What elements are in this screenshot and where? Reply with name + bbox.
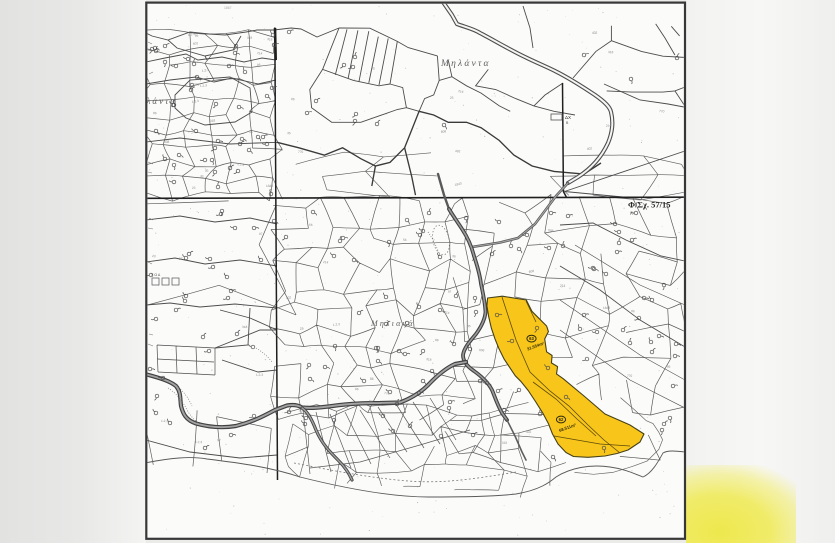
svg-text:318: 318: [267, 37, 273, 42]
svg-text:86: 86: [291, 97, 295, 101]
svg-text:35: 35: [287, 131, 291, 135]
svg-text:23: 23: [152, 254, 156, 258]
svg-text:318: 318: [247, 36, 253, 40]
svg-text:214: 214: [560, 284, 566, 288]
svg-text:1.2.3: 1.2.3: [200, 83, 208, 88]
svg-text:770: 770: [659, 109, 665, 114]
svg-text:23: 23: [192, 186, 196, 190]
svg-text:402: 402: [286, 295, 292, 300]
svg-text:608: 608: [441, 129, 447, 134]
svg-text:86: 86: [370, 377, 374, 381]
svg-text:1.2.3: 1.2.3: [161, 419, 168, 423]
svg-text:608: 608: [479, 348, 485, 352]
svg-text:86: 86: [435, 338, 439, 342]
svg-text:Φ/Σχ. 57/15: Φ/Σχ. 57/15: [628, 200, 671, 210]
svg-text:97: 97: [259, 232, 263, 236]
svg-text:402: 402: [455, 149, 461, 153]
svg-text:23: 23: [450, 96, 454, 100]
svg-text:608: 608: [164, 140, 170, 144]
svg-text:86: 86: [355, 387, 359, 391]
svg-text:770: 770: [194, 82, 200, 87]
svg-text:35: 35: [249, 130, 253, 134]
svg-text:402: 402: [526, 430, 532, 434]
svg-text:770: 770: [298, 150, 304, 154]
svg-text:Μηλιανά: Μηλιανά: [370, 319, 415, 328]
svg-text:318: 318: [608, 50, 614, 54]
svg-text:86: 86: [153, 111, 157, 115]
svg-text:402: 402: [592, 31, 598, 35]
svg-text:770: 770: [384, 391, 390, 396]
svg-text:318: 318: [242, 325, 248, 329]
svg-text:214: 214: [606, 123, 612, 128]
svg-text:318: 318: [502, 441, 508, 445]
svg-text:402: 402: [587, 146, 593, 151]
svg-text:ΔΧ: ΔΧ: [565, 115, 571, 120]
svg-text:770: 770: [627, 374, 633, 378]
svg-text:63: 63: [529, 336, 534, 341]
svg-text:56: 56: [403, 238, 407, 242]
svg-text:318: 318: [210, 118, 216, 123]
svg-text:Χ Ω Δ: Χ Ω Δ: [151, 273, 161, 277]
svg-text:214: 214: [257, 51, 263, 56]
svg-text:35: 35: [467, 324, 471, 328]
svg-text:1843: 1843: [266, 184, 273, 188]
svg-text:62: 62: [559, 417, 564, 422]
svg-text:56: 56: [309, 223, 313, 227]
svg-text:1867: 1867: [224, 6, 232, 10]
svg-text:214: 214: [323, 260, 329, 265]
svg-text:97: 97: [179, 257, 183, 261]
svg-text:Μηλάντα: Μηλάντα: [440, 59, 491, 69]
svg-text:86: 86: [257, 63, 261, 67]
svg-text:1.2.3: 1.2.3: [256, 373, 263, 377]
svg-text:1843: 1843: [603, 306, 610, 310]
svg-text:1.2.3: 1.2.3: [195, 440, 202, 444]
